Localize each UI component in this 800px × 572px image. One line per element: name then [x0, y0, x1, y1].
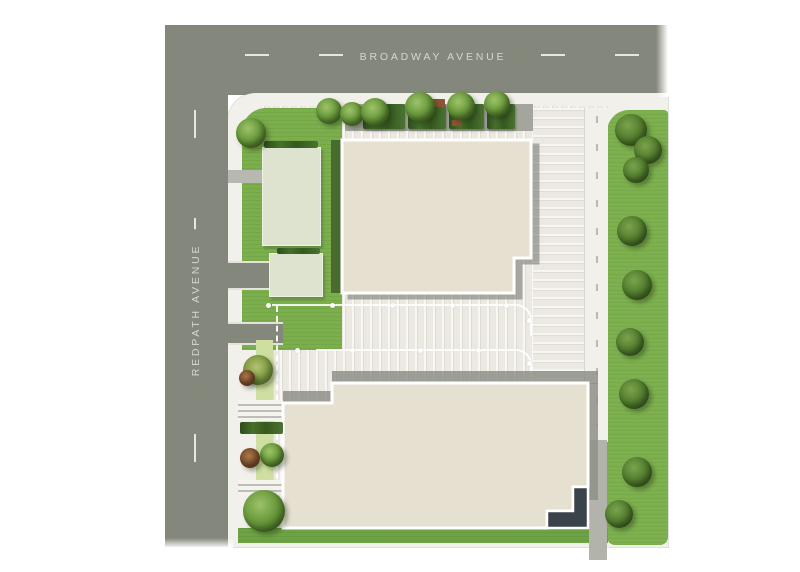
pavement-dot: [418, 348, 423, 353]
north-building: [339, 137, 539, 302]
tree: [236, 118, 266, 148]
tree: [622, 457, 652, 487]
site-plan: BROADWAY AVENUE REDPATH AVENUE: [0, 0, 800, 572]
tree: [484, 91, 510, 117]
pavement-dot: [390, 303, 395, 308]
pavement-dot: [527, 318, 532, 323]
tree: [316, 98, 342, 124]
lane-marking-north: [272, 304, 532, 336]
east-pavement: [533, 108, 585, 380]
tree: [405, 92, 435, 122]
tree: [447, 92, 475, 120]
tree: [260, 443, 284, 467]
site-plan-page: BROADWAY AVENUE REDPATH AVENUE: [0, 0, 800, 572]
pavement-dot: [350, 348, 355, 353]
hedge-row: [277, 248, 320, 254]
hedge-row: [264, 141, 318, 148]
broadway-avenue-label: BROADWAY AVENUE: [346, 49, 521, 65]
pavement-dot: [527, 361, 532, 366]
tree: [617, 216, 647, 246]
road-fade-east: [656, 23, 670, 97]
hedge-row: [240, 422, 283, 434]
tree: [619, 379, 649, 409]
annex-b-building: [269, 253, 323, 297]
tree: [623, 157, 649, 183]
pavement-dot: [330, 303, 335, 308]
redpath-avenue-label: REDPATH AVENUE: [188, 230, 204, 391]
annex-a-building: [262, 147, 321, 246]
pavement-dot: [295, 348, 300, 353]
planter-accent: [452, 120, 462, 126]
south-building: [280, 368, 595, 533]
pavement-dot: [266, 303, 271, 308]
striped-walkway-1: [238, 400, 283, 421]
tree: [240, 448, 260, 468]
pavement-dot: [476, 348, 481, 353]
road-fade-south: [163, 538, 233, 550]
tree: [616, 328, 644, 356]
pavement-dot: [450, 303, 455, 308]
tree: [605, 500, 633, 528]
tree: [239, 370, 255, 386]
tree: [622, 270, 652, 300]
pavement-dot: [504, 303, 509, 308]
tree: [243, 490, 285, 532]
tree: [361, 98, 389, 126]
entry-walkway: [228, 170, 262, 183]
